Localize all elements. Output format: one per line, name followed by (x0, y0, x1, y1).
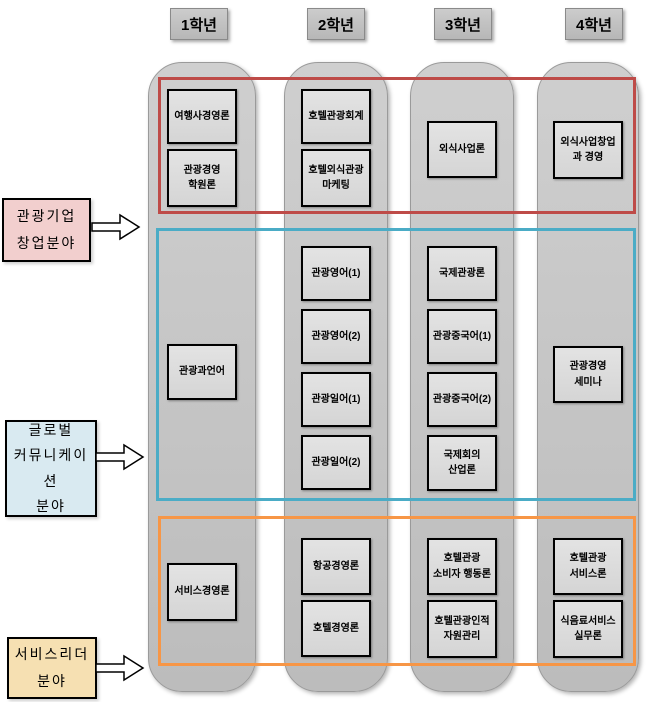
right-arrow-icon (95, 654, 145, 682)
course-box: 호텔관광회계 (301, 89, 371, 144)
course-box: 항공경영론 (301, 538, 371, 595)
course-box: 외식사업론 (427, 121, 497, 178)
right-arrow-icon (95, 443, 145, 471)
year-header-4: 4학년 (565, 8, 623, 40)
course-box: 관광중국어(1) (427, 309, 497, 364)
year-header-1: 1학년 (170, 8, 228, 40)
area-label-tourism-startup: 관광기업 창업분야 (2, 198, 91, 262)
course-box: 호텔관광 서비스론 (553, 538, 623, 595)
course-box: 관광경영 학원론 (167, 149, 237, 207)
course-box: 국제회의 산업론 (427, 435, 497, 491)
area-label-global-communication: 글로벌 커뮤니케이션 분야 (5, 420, 97, 517)
course-box: 관광중국어(2) (427, 372, 497, 427)
column-year2: 호텔관광회계 호텔외식관광 마케팅 관광영어(1) 관광영어(2) 관광일어(1… (284, 62, 388, 692)
course-box: 관광영어(2) (301, 309, 371, 364)
course-box: 외식사업창업 과 경영 (553, 121, 623, 179)
year-header-3: 3학년 (434, 8, 492, 40)
course-box: 호텔경영론 (301, 600, 371, 657)
course-box: 관광일어(2) (301, 435, 371, 490)
course-box: 서비스경영론 (167, 563, 237, 621)
course-box: 관광경영 세미나 (553, 346, 623, 403)
column-year4: 외식사업창업 과 경영 관광경영 세미나 호텔관광 서비스론 식음료서비스 실무… (537, 62, 639, 692)
course-box: 관광과언어 (167, 344, 237, 400)
course-box: 관광영어(1) (301, 246, 371, 301)
column-year3: 외식사업론 국제관광론 관광중국어(1) 관광중국어(2) 국제회의 산업론 호… (410, 62, 514, 692)
course-box: 호텔관광인적 자원관리 (427, 600, 497, 658)
course-box: 호텔관광 소비자 행동론 (427, 538, 497, 595)
column-year1: 여행사경영론 관광경영 학원론 관광과언어 서비스경영론 (148, 62, 256, 692)
course-box: 관광일어(1) (301, 372, 371, 427)
right-arrow-icon (91, 213, 141, 241)
year-header-2: 2학년 (307, 8, 365, 40)
area-label-service-leader: 서비스리더 분야 (7, 637, 97, 699)
curriculum-roadmap-diagram: 1학년 2학년 3학년 4학년 여행사경영론 관광경영 학원론 관광과언어 서비… (0, 0, 648, 702)
course-box: 식음료서비스 실무론 (553, 600, 623, 658)
course-box: 호텔외식관광 마케팅 (301, 149, 371, 207)
course-box: 국제관광론 (427, 246, 497, 301)
course-box: 여행사경영론 (167, 89, 237, 144)
